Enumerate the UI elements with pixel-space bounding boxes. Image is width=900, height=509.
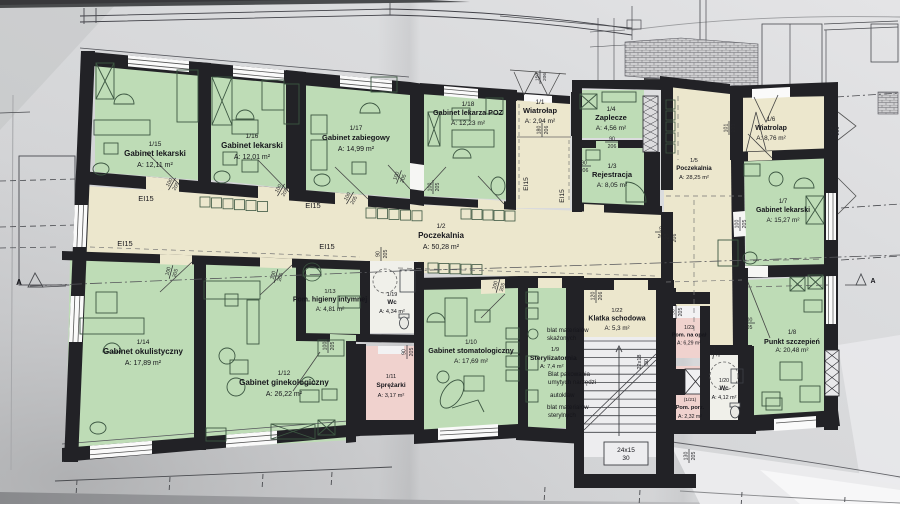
svg-text:Sprężarki: Sprężarki [376,382,405,389]
svg-text:A: 2,32 m²: A: 2,32 m² [678,414,702,420]
svg-text:1/11: 1/11 [386,374,396,380]
svg-text:A: 50,28 m²: A: 50,28 m² [423,244,460,251]
svg-text:A: 7,4 m²: A: 7,4 m² [540,364,564,370]
svg-text:1/4: 1/4 [606,106,615,113]
svg-text:22x18: 22x18 [637,355,643,370]
svg-text:Wc: Wc [720,386,730,392]
svg-text:Klatka schodowa: Klatka schodowa [588,316,645,323]
svg-text:205: 205 [678,308,684,317]
svg-text:1/13: 1/13 [324,289,335,295]
svg-text:Gabinet lekarski: Gabinet lekarski [221,141,283,150]
svg-text:90: 90 [609,137,615,143]
svg-text:Gabinet lekarski: Gabinet lekarski [756,207,810,214]
svg-text:1/12: 1/12 [278,370,291,377]
svg-text:1/15: 1/15 [149,141,162,148]
svg-text:EI15: EI15 [523,177,530,191]
svg-text:1/2: 1/2 [436,223,445,230]
svg-text:Blat pakowania: Blat pakowania [548,371,591,378]
svg-text:Gabinet ginekologiczny: Gabinet ginekologiczny [239,378,329,387]
svg-text:A: A [16,278,22,287]
svg-text:Gabinet stomatologiczny: Gabinet stomatologiczny [428,346,513,355]
svg-text:90: 90 [659,227,665,233]
svg-text:A: 17,69 m²: A: 17,69 m² [454,358,489,365]
svg-text:sterylnych: sterylnych [548,412,576,419]
svg-text:autoklaw: autoklaw [550,392,575,399]
svg-text:205: 205 [409,348,415,357]
svg-text:206: 206 [598,292,604,301]
svg-text:205: 205 [435,183,441,192]
svg-text:Pom. porz.: Pom. porz. [676,405,705,411]
svg-text:Sterylizatornia: Sterylizatornia [530,355,577,362]
svg-text:EI15: EI15 [117,239,132,248]
svg-text:1/8: 1/8 [788,330,797,336]
svg-text:1/22: 1/22 [611,308,622,314]
svg-text:1/20: 1/20 [719,378,729,384]
svg-text:Poczekalnia: Poczekalnia [418,231,464,240]
svg-text:A: 8,76 m²: A: 8,76 m² [756,135,785,142]
svg-text:A: A [870,278,875,285]
svg-text:blat materiałów: blat materiałów [547,404,589,411]
svg-text:206: 206 [544,126,550,135]
svg-text:Wiatrołap: Wiatrołap [523,106,558,115]
svg-text:1/5: 1/5 [690,158,698,164]
svg-text:1/17: 1/17 [350,125,363,132]
svg-text:150: 150 [535,73,541,81]
svg-text:130: 130 [684,452,690,461]
svg-text:1/14: 1/14 [137,339,150,346]
svg-text:EI15: EI15 [559,189,566,203]
svg-text:EI15: EI15 [138,194,153,203]
svg-text:A: 26,22 m²: A: 26,22 m² [266,391,303,398]
svg-text:1/3: 1/3 [607,163,616,170]
svg-text:A: 4,56 m²: A: 4,56 m² [596,125,627,132]
svg-text:206: 206 [608,144,617,150]
svg-text:Pom. higieny intymnej: Pom. higieny intymnej [293,297,367,304]
svg-text:205: 205 [691,452,697,461]
svg-text:Poczekalnia: Poczekalnia [676,165,712,172]
svg-text:90: 90 [402,349,408,355]
svg-text:Pom. na opał: Pom. na opał [672,333,707,339]
svg-text:1/7: 1/7 [779,199,788,205]
svg-text:A: 12,01 m²: A: 12,01 m² [234,154,271,161]
svg-text:A: 5,3 m²: A: 5,3 m² [604,325,629,332]
svg-text:100: 100 [735,220,741,229]
svg-text:A: 28,25 m²: A: 28,25 m² [679,175,709,181]
svg-text:205: 205 [731,124,737,133]
svg-text:A: 8,05 m²: A: 8,05 m² [597,182,628,189]
svg-text:205: 205 [744,325,753,331]
svg-text:A: 3,17 m²: A: 3,17 m² [378,393,405,399]
svg-text:205: 205 [835,127,841,136]
svg-text:1/18: 1/18 [462,101,475,108]
svg-text:Rejestracja: Rejestracja [592,170,633,179]
svg-text:skażonych: skażonych [547,335,577,342]
svg-text:1/16: 1/16 [246,133,259,140]
svg-text:1/6: 1/6 [767,117,776,123]
svg-text:206: 206 [672,234,678,243]
svg-text:EI15: EI15 [319,242,334,251]
svg-text:1/19: 1/19 [387,292,398,298]
svg-text:A: 4,12 m²: A: 4,12 m² [712,395,737,401]
svg-text:A: 12,11 m²: A: 12,11 m² [137,162,173,169]
svg-text:101: 101 [724,124,730,133]
svg-text:205: 205 [742,220,748,229]
svg-text:171: 171 [828,127,834,136]
svg-text:Punkt szczepień: Punkt szczepień [764,337,820,346]
svg-text:206: 206 [580,168,589,174]
svg-text:90: 90 [581,161,587,167]
svg-text:umytych narzędzi: umytych narzędzi [548,379,596,386]
svg-text:206: 206 [542,73,548,81]
svg-text:100: 100 [744,318,753,324]
svg-text:A: 4,34 m²: A: 4,34 m² [379,309,405,315]
svg-text:205: 205 [383,250,389,259]
svg-text:A: 20,48 m²: A: 20,48 m² [775,347,808,354]
svg-text:Gabinet lekarski: Gabinet lekarski [124,149,186,158]
svg-text:205: 205 [658,234,667,240]
svg-text:1/23: 1/23 [684,325,694,331]
svg-text:(1/21): (1/21) [684,397,697,403]
svg-text:A: 12,23 m²: A: 12,23 m² [451,120,486,127]
svg-text:90: 90 [671,309,677,315]
svg-text:120: 120 [591,292,597,301]
svg-text:A: 2,94 m²: A: 2,94 m² [525,118,556,125]
svg-text:Gabinet zabiegowy: Gabinet zabiegowy [322,133,391,142]
svg-text:A: 15,27 m²: A: 15,27 m² [766,217,799,224]
svg-text:Gabinet lekarza POZ: Gabinet lekarza POZ [433,108,504,117]
svg-text:Wiatrolap: Wiatrolap [755,125,787,132]
svg-text:Zaplecze: Zaplecze [595,113,627,122]
svg-text:30: 30 [622,455,630,462]
svg-text:30: 30 [644,359,650,365]
svg-text:A: 4,81 m²: A: 4,81 m² [316,306,345,313]
svg-text:180: 180 [537,126,543,135]
svg-text:100: 100 [323,342,329,351]
svg-text:EI15: EI15 [305,201,320,210]
svg-text:A: 14,99 m²: A: 14,99 m² [338,146,375,153]
svg-text:1/9: 1/9 [551,347,559,353]
svg-text:Wc: Wc [387,299,397,306]
svg-text:24x15: 24x15 [617,447,635,454]
svg-text:1/1: 1/1 [535,99,544,106]
svg-text:100: 100 [428,183,434,192]
svg-text:A: 6,29 m²: A: 6,29 m² [677,341,701,347]
svg-text:90: 90 [376,251,382,257]
svg-text:Gabinet okulistyczny: Gabinet okulistyczny [103,347,184,356]
svg-text:A: 17,89 m²: A: 17,89 m² [125,360,162,367]
svg-text:205: 205 [330,342,336,351]
svg-text:blat materiałów: blat materiałów [547,327,589,334]
